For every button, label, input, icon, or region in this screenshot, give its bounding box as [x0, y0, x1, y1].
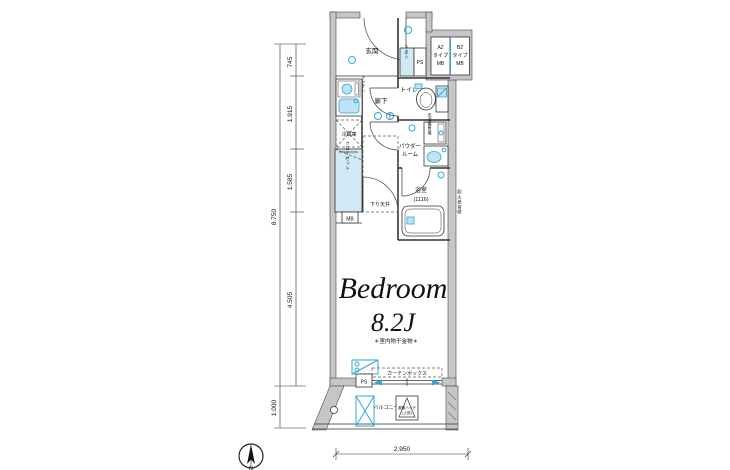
- bath-room: 浴室 (1116): [402, 168, 444, 236]
- dim-seg2-label: 1.915: [287, 105, 294, 122]
- powder-room-label-2: ルーム: [402, 151, 419, 158]
- wall-window-right: [442, 378, 456, 386]
- wall-balcony-right: [446, 386, 458, 430]
- bedroom-label: Bedroom: [339, 272, 448, 305]
- ps-bottom-label: PS: [361, 380, 368, 386]
- fridge-label: 冷蔵庫: [341, 131, 356, 138]
- wall-mb-connector: [426, 12, 432, 32]
- shower-symbol-icon: [438, 172, 444, 178]
- dim-total-label: 8.750: [271, 208, 278, 225]
- toilet-label: トイレ: [400, 88, 418, 94]
- dim-seg5-label: 1.000: [271, 399, 278, 416]
- balcony-label: バルコニー: [374, 405, 399, 411]
- fire-wall-note: 耐火遮音壁: [457, 188, 463, 214]
- kitchen-column: キッチン 冷蔵庫 クローゼット MB: [335, 75, 367, 223]
- mb-small-label: MB: [346, 217, 354, 223]
- drain-icon: [407, 217, 414, 224]
- window-area: カーテンボックス PS: [352, 360, 442, 387]
- bath-size-label: (1116): [413, 197, 428, 203]
- doorbell-symbol-icon: [405, 27, 412, 34]
- burner-icon: [342, 84, 352, 94]
- dim-seg1-label: 745: [287, 56, 294, 67]
- entry-light-icon: [349, 57, 356, 64]
- bath-label: 浴室: [415, 186, 427, 194]
- lowered-ceiling-label: 下り天井: [370, 201, 390, 208]
- light-symbol-icon: [409, 125, 415, 131]
- svg-text:タイプ: タイプ: [452, 52, 467, 59]
- light-symbol-icon: [375, 113, 382, 120]
- closet-label: クローゼット: [345, 141, 351, 171]
- floor-plan-drawing: 玄関 下足入 PS A2 タイプ MB B2 タイプ MB 廊下 下り天井 キッ…: [0, 0, 730, 470]
- bedroom-size-label: 8.2J: [371, 308, 417, 337]
- lowered-ceiling-area: [363, 136, 398, 212]
- wall-right: [448, 80, 456, 386]
- entry-label: 玄関: [366, 46, 379, 55]
- floor-plan-page: 玄関 下足入 PS A2 タイプ MB B2 タイプ MB 廊下 下り天井 キッ…: [0, 0, 730, 470]
- hallway-label: 廊下: [375, 96, 389, 105]
- dim-bottom-label: 2.950: [394, 446, 411, 453]
- entry-area: 玄関 下足入 PS A2 タイプ MB B2 タイプ MB: [349, 18, 470, 76]
- dim-seg3-label: 1.585: [287, 173, 294, 190]
- shoe-box-label: 下足入: [405, 45, 410, 59]
- curtain-box-label: カーテンボックス: [387, 370, 427, 377]
- svg-text:MB: MB: [437, 61, 445, 67]
- svg-text:B2: B2: [457, 45, 463, 51]
- washlet-remote-icon: [415, 84, 422, 89]
- kitchen-label: キッチン: [362, 75, 367, 93]
- hallway-area: 廊下 下り天井: [363, 96, 398, 212]
- escape-hatch-label-1: 避難ハッチ: [398, 405, 416, 410]
- powder-room-label-1: パウダー: [399, 142, 421, 150]
- kitchen-sink-icon: [339, 99, 359, 113]
- svg-text:A2: A2: [437, 45, 443, 51]
- dim-seg4-label: 4.505: [287, 291, 294, 308]
- wall-balcony-diagonal: [312, 386, 344, 430]
- balcony-column: [331, 407, 338, 414]
- svg-text:MB: MB: [456, 61, 464, 67]
- ps-top-label: PS: [417, 60, 424, 66]
- indoor-drying-note: ＊室内物干金物＊: [374, 337, 418, 345]
- svg-text:タイプ: タイプ: [433, 52, 448, 59]
- escape-hatch-label-2: (上部): [402, 410, 412, 415]
- dimension-bottom: 2.950: [333, 446, 471, 460]
- north-compass-icon: N: [239, 444, 263, 470]
- washer-label: 洗濯機置場: [428, 111, 433, 135]
- dimension-left: 8.750 745 1.915 1.585 4.505 1.000: [271, 44, 306, 428]
